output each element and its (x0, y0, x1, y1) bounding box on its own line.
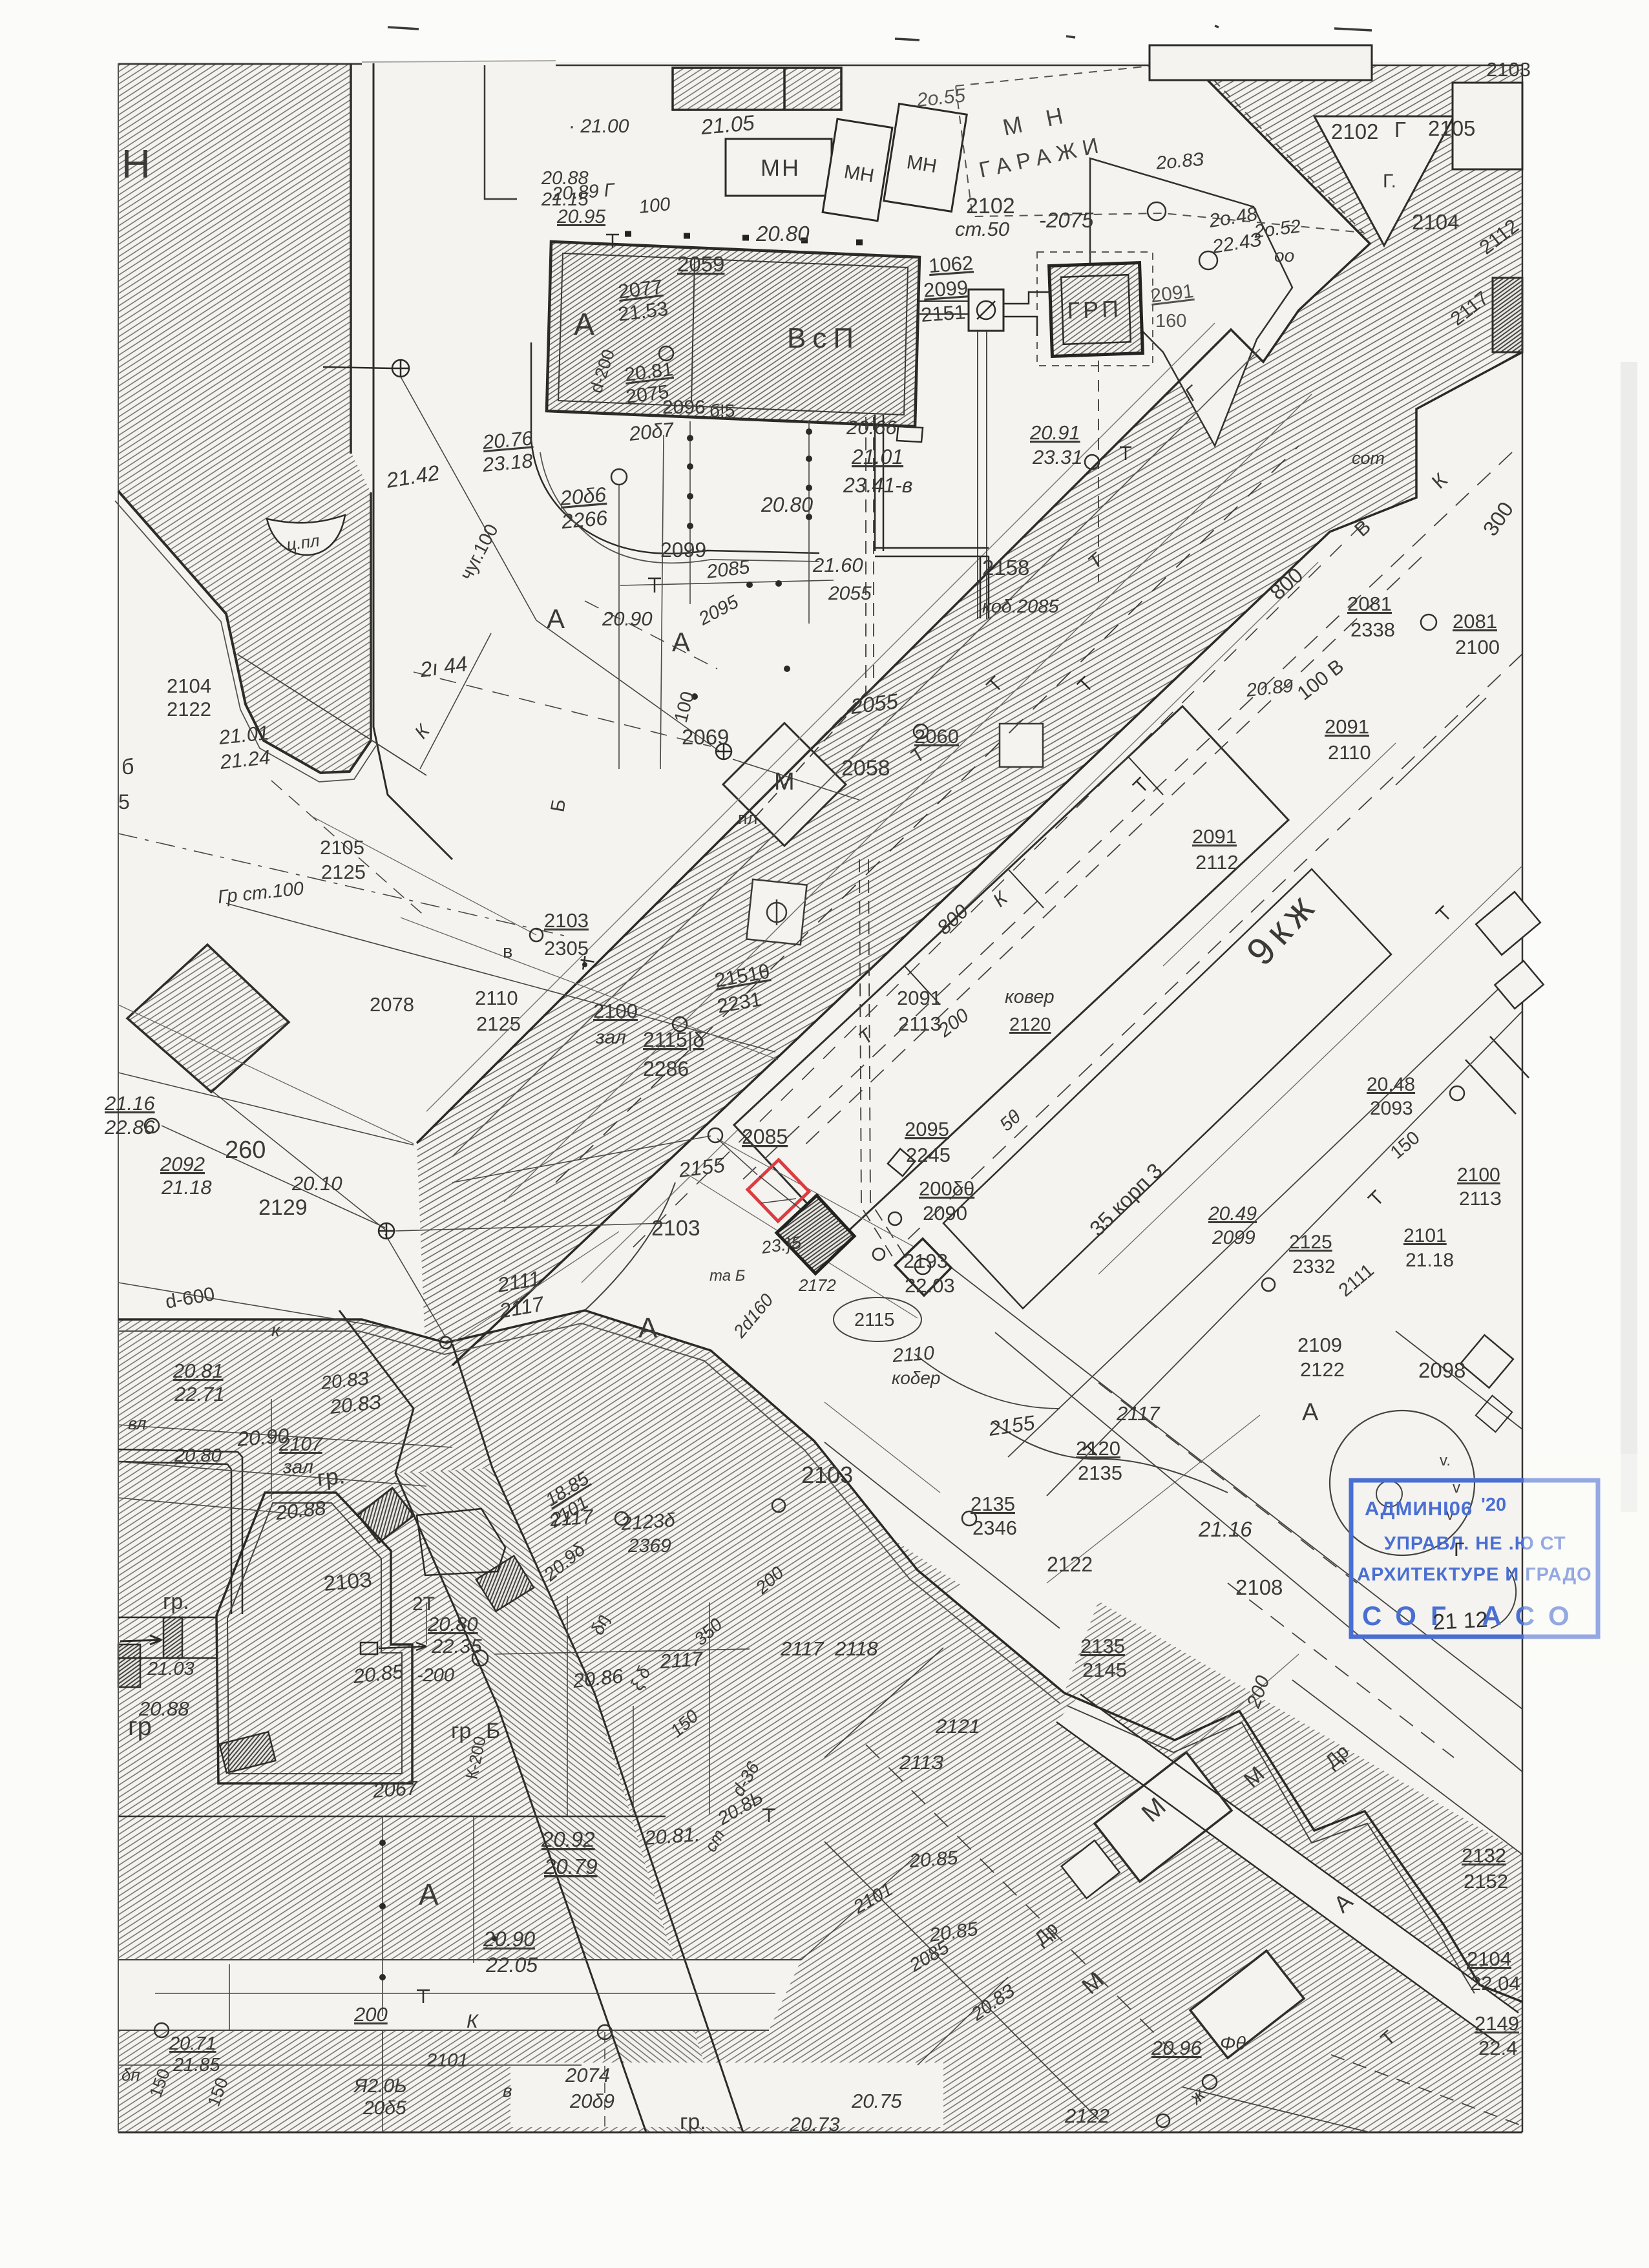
svg-text:22.86: 22.86 (104, 1116, 155, 1139)
svg-text:2081: 2081 (1347, 593, 1392, 615)
svg-text:-200: -200 (417, 1665, 454, 1686)
svg-text:2115|δ: 2115|δ (643, 1028, 704, 1051)
svg-text:21.03: 21.03 (147, 1659, 194, 1679)
svg-text:22.4: 22.4 (1478, 2037, 1517, 2059)
svg-text:2090: 2090 (923, 1202, 967, 1224)
svg-text:А: А (574, 308, 594, 342)
svg-text:2122: 2122 (1300, 1358, 1345, 1381)
svg-text:21.16: 21.16 (1198, 1517, 1252, 1541)
svg-text:вл: вл (128, 1414, 146, 1433)
svg-text:2100: 2100 (1457, 1164, 1500, 1186)
svg-text:2059: 2059 (677, 252, 724, 276)
svg-text:211З: 211З (899, 1751, 943, 1774)
svg-text:23.31: 23.31 (1032, 446, 1083, 468)
svg-text:Г: Г (1394, 118, 1406, 142)
svg-text:2091: 2091 (1325, 715, 1369, 738)
svg-text:2069: 2069 (682, 725, 729, 749)
svg-text:20.48: 20.48 (1367, 1074, 1415, 1095)
svg-text:МН: МН (761, 154, 801, 181)
svg-text:2104: 2104 (1467, 1948, 1511, 1970)
svg-text:2120: 2120 (1009, 1014, 1051, 1035)
svg-text:2145: 2145 (1082, 1659, 1127, 1681)
svg-text:22.04: 22.04 (1470, 1972, 1520, 1995)
svg-text:зал: зал (595, 1027, 626, 1048)
svg-text:2125: 2125 (321, 861, 366, 883)
svg-text:2101: 2101 (426, 2050, 468, 2071)
svg-text:2104: 2104 (1412, 210, 1459, 234)
svg-text:А: А (419, 1878, 439, 1911)
svg-text:ГРП: ГРП (1067, 295, 1122, 324)
svg-text:211З: 211З (1459, 1188, 1502, 1210)
svg-text:5: 5 (118, 790, 130, 814)
svg-text:2338: 2338 (1350, 618, 1395, 641)
svg-text:Г: Г (1454, 1539, 1464, 1560)
svg-text:А: А (638, 1312, 658, 1344)
svg-text:2098: 2098 (1418, 1358, 1465, 1382)
svg-text:100: 100 (638, 194, 671, 218)
svg-text:2108: 2108 (1235, 1575, 1283, 1599)
svg-text:2103: 2103 (544, 909, 589, 932)
svg-text:2096: 2096 (662, 397, 706, 418)
svg-text:2102: 2102 (1331, 120, 1378, 143)
svg-text:2115: 2115 (854, 1310, 894, 1330)
svg-text:2193: 2193 (903, 1250, 948, 1272)
svg-text:Я2.0Ь: Я2.0Ь (353, 2075, 407, 2097)
svg-text:20.75: 20.75 (851, 2090, 902, 2112)
svg-text:2125: 2125 (476, 1013, 521, 1035)
svg-text:коδ.2085: коδ.2085 (982, 596, 1059, 617)
svg-text:2085: 2085 (742, 1125, 788, 1148)
svg-text:21.01: 21.01 (851, 445, 903, 468)
svg-text:20.96: 20.96 (1151, 2037, 1202, 2059)
svg-text:2245: 2245 (906, 1144, 951, 1166)
svg-text:2122: 2122 (1064, 2105, 1109, 2127)
svg-text:2099: 2099 (660, 538, 706, 562)
svg-text:20.73: 20.73 (789, 2113, 840, 2136)
svg-text:2149: 2149 (1475, 2012, 1519, 2035)
svg-text:20.66: 20.66 (846, 416, 897, 439)
svg-text:2135: 2135 (1080, 1635, 1125, 1657)
svg-text:2369: 2369 (627, 1535, 671, 1557)
svg-text:21.16: 21.16 (104, 1092, 155, 1115)
svg-text:2060: 2060 (914, 725, 959, 748)
svg-text:2332: 2332 (1292, 1256, 1336, 1277)
svg-text:20.80: 20.80 (761, 493, 813, 516)
svg-text:гр.: гр. (680, 2110, 706, 2134)
svg-text:20.80: 20.80 (755, 222, 810, 246)
svg-text:2105: 2105 (320, 836, 364, 859)
svg-text:2109: 2109 (1297, 1334, 1342, 1356)
svg-text:2101: 2101 (1403, 1225, 1447, 1246)
svg-text:2286: 2286 (643, 1057, 689, 1080)
svg-text:1062: 1062 (928, 251, 974, 277)
svg-text:А: А (547, 604, 565, 634)
svg-text:2100: 2100 (1455, 636, 1500, 658)
svg-text:20.91: 20.91 (1029, 421, 1080, 444)
svg-text:2110: 2110 (475, 987, 518, 1009)
svg-text:2305: 2305 (544, 937, 589, 960)
svg-text:21 12: 21 12 (1432, 1608, 1488, 1635)
svg-text:2091: 2091 (1192, 825, 1237, 848)
svg-text:2110: 2110 (891, 1343, 935, 1367)
svg-text:20.90: 20.90 (483, 1927, 535, 1951)
svg-text:20δ9: 20δ9 (569, 2090, 614, 2112)
svg-text:v.: v. (1440, 1452, 1451, 1469)
svg-text:ст.50: ст.50 (955, 218, 1009, 240)
svg-text:коδер: коδер (892, 1368, 941, 1388)
svg-text:гр: гр (451, 1719, 471, 1743)
svg-text:20.71: 20.71 (169, 2033, 216, 2054)
svg-text:2122: 2122 (1047, 1553, 1093, 1576)
svg-text:2105: 2105 (1428, 116, 1475, 140)
svg-text:200: 200 (353, 2003, 388, 2026)
svg-text:2103: 2103 (801, 1462, 853, 1488)
svg-text:Н: Н (121, 142, 151, 187)
svg-text:20.80: 20.80 (174, 1445, 222, 1466)
svg-text:200δθ: 200δθ (919, 1177, 974, 1200)
svg-text:20.10: 20.10 (291, 1172, 342, 1195)
svg-text:260: 260 (225, 1137, 266, 1164)
svg-text:2129: 2129 (258, 1195, 308, 1220)
svg-text:2099: 2099 (923, 276, 969, 302)
svg-text:зал: зал (282, 1456, 313, 1478)
svg-text:та Б: та Б (709, 1267, 745, 1285)
svg-text:2100: 2100 (593, 1000, 638, 1022)
svg-text:20.80: 20.80 (427, 1613, 478, 1635)
svg-text:21.85: 21.85 (173, 2055, 220, 2075)
svg-text:К: К (467, 2011, 479, 2032)
svg-text:2152: 2152 (1464, 1870, 1508, 1893)
svg-text:2135: 2135 (1078, 1462, 1122, 1484)
svg-text:21.18: 21.18 (161, 1176, 212, 1199)
svg-text:20.81: 20.81 (173, 1360, 224, 1382)
svg-text:2158: 2158 (982, 556, 1029, 580)
svg-text:АДМИНI06: АДМИНI06 (1365, 1497, 1473, 1520)
svg-text:20.90: 20.90 (236, 1423, 290, 1451)
svg-text:20.85: 20.85 (908, 1847, 959, 1872)
svg-text:сот: сот (1352, 448, 1385, 468)
svg-text:'20: '20 (1481, 1495, 1506, 1515)
svg-text:22.71: 22.71 (174, 1383, 225, 1405)
svg-text:20.81.: 20.81. (643, 1823, 700, 1849)
svg-text:20.90: 20.90 (602, 607, 653, 630)
svg-text:2135: 2135 (971, 1493, 1015, 1515)
svg-text:2120: 2120 (1076, 1437, 1120, 1460)
svg-text:22.03: 22.03 (905, 1274, 955, 1297)
svg-text:20.49: 20.49 (1208, 1203, 1257, 1224)
svg-text:б: б (121, 755, 134, 779)
svg-text:2172: 2172 (798, 1276, 836, 1295)
svg-text:оо: оо (1274, 246, 1294, 266)
svg-text:20.79: 20.79 (543, 1854, 598, 1878)
svg-text:2112: 2112 (1195, 851, 1239, 874)
svg-text:ковер: ковер (1005, 987, 1055, 1007)
svg-text:2103: 2103 (651, 1216, 700, 1241)
svg-text:пл: пл (738, 808, 757, 828)
svg-text:ВсП: ВсП (787, 322, 860, 354)
svg-text:2132: 2132 (1462, 1844, 1506, 1867)
svg-text:20δ6: 20δ6 (558, 483, 607, 510)
svg-text:2074: 2074 (565, 2064, 610, 2086)
svg-text:2102: 2102 (966, 194, 1015, 218)
svg-text:2117: 2117 (658, 1647, 705, 1673)
svg-text:20.95: 20.95 (556, 206, 605, 227)
svg-text:к: к (271, 1320, 281, 1340)
svg-text:А: А (1302, 1399, 1319, 1426)
svg-text:Г.: Г. (1383, 171, 1396, 192)
svg-text:2118: 2118 (834, 1637, 878, 1660)
svg-text:δп: δп (121, 2065, 140, 2084)
svg-text:2о.8З: 2о.8З (1155, 149, 1205, 174)
svg-text:2121: 2121 (935, 1715, 980, 1738)
svg-text:2099: 2099 (1212, 1227, 1255, 1248)
svg-text:2067: 2067 (372, 1776, 419, 1802)
svg-text:160: 160 (1155, 311, 1186, 331)
svg-text:2091: 2091 (897, 987, 941, 1009)
svg-text:2093: 2093 (1370, 1098, 1413, 1119)
svg-text:210З: 210З (322, 1568, 373, 1595)
svg-text:2125: 2125 (1289, 1232, 1332, 1253)
svg-text:20.92: 20.92 (541, 1827, 595, 1851)
svg-text:20δ7: 20δ7 (627, 418, 676, 445)
svg-text:22.35: 22.35 (431, 1635, 482, 1657)
svg-text:2104: 2104 (167, 675, 211, 697)
svg-text:23.18: 23.18 (481, 449, 534, 476)
svg-text:2117: 2117 (780, 1637, 824, 1660)
svg-text:в: в (503, 941, 512, 962)
svg-text:2Т: 2Т (412, 1593, 435, 1615)
svg-text:23.41-в: 23.41-в (843, 474, 912, 497)
svg-text:гр.: гр. (163, 1590, 189, 1614)
svg-text:21.60: 21.60 (812, 554, 863, 576)
svg-text:Φθ: Φθ (1220, 2033, 1246, 2054)
svg-text:2117: 2117 (1116, 1402, 1161, 1425)
svg-text:2151: 2151 (920, 300, 966, 326)
svg-text:2266: 2266 (560, 506, 608, 533)
svg-text:-2075: -2075 (1039, 208, 1094, 232)
svg-text:в: в (503, 2081, 512, 2101)
svg-text:2058: 2058 (841, 756, 890, 781)
svg-text:2081: 2081 (1453, 610, 1497, 633)
svg-text:2110: 2110 (1328, 741, 1371, 764)
svg-text:2346: 2346 (972, 1517, 1017, 1539)
svg-text:20δ5: 20δ5 (362, 2097, 406, 2119)
svg-text:А: А (672, 627, 690, 657)
svg-text:М: М (774, 768, 795, 795)
svg-text:2078: 2078 (370, 993, 414, 1016)
svg-text:2055: 2055 (828, 583, 872, 604)
svg-text:б!5: б!5 (709, 401, 735, 421)
svg-text:21.05: 21.05 (699, 110, 755, 139)
svg-text:2103: 2103 (1486, 58, 1531, 81)
svg-text:2092: 2092 (160, 1153, 205, 1175)
svg-text:гр: гр (128, 1712, 152, 1741)
svg-text:21.18: 21.18 (1405, 1250, 1454, 1271)
svg-text:· 21.00: · 21.00 (569, 116, 629, 137)
svg-text:2095: 2095 (905, 1118, 949, 1140)
svg-text:22.05: 22.05 (485, 1953, 538, 1977)
svg-text:2123δ: 2123δ (620, 1509, 676, 1535)
svg-text:2122: 2122 (167, 698, 211, 720)
svg-text:гр.: гр. (316, 1462, 346, 1491)
